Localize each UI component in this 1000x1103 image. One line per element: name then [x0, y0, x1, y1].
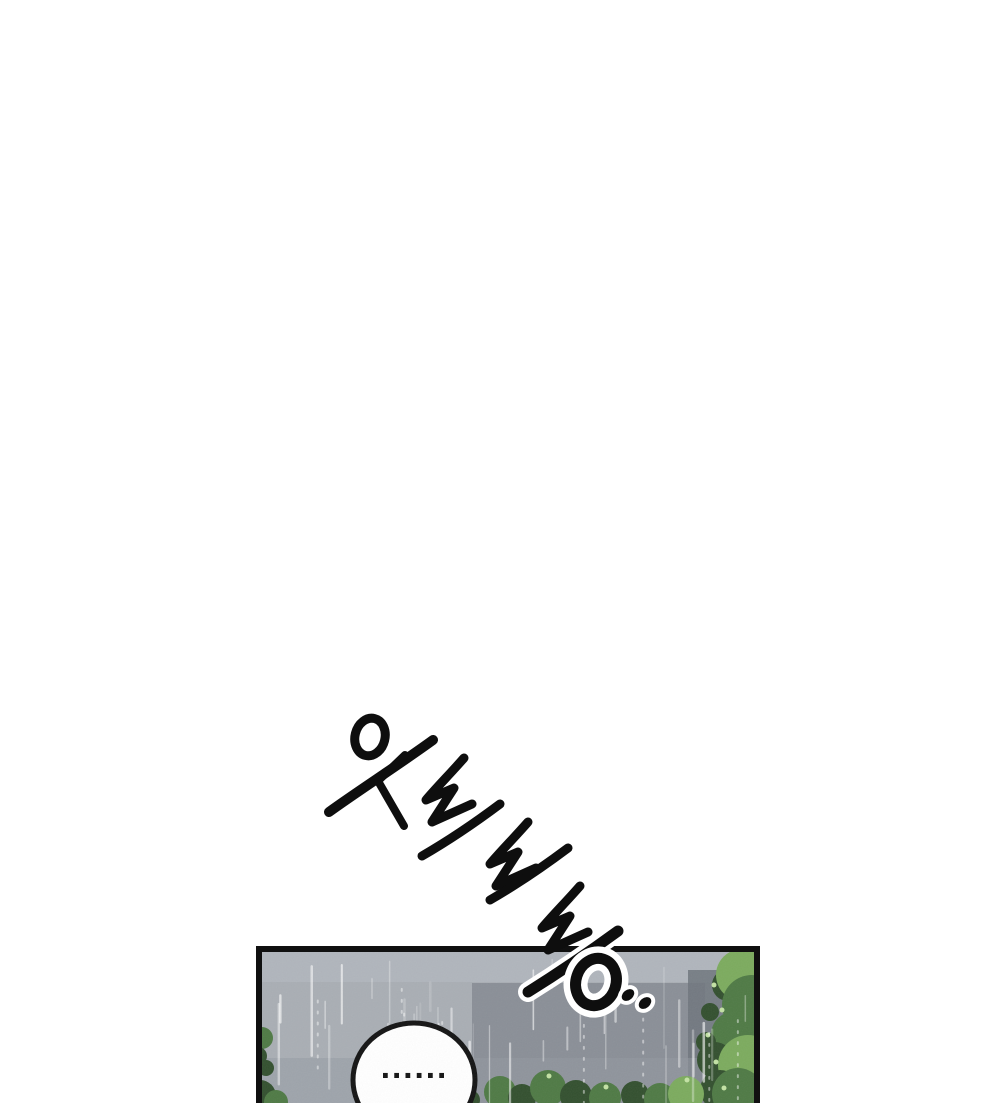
page-art: ...... 쏴아아아..: [0, 0, 1000, 1103]
sfx-stroke-ring: [351, 715, 389, 759]
panel-scene: ......: [244, 949, 782, 1103]
sfx-zigzag: [426, 758, 472, 822]
webtoon-page: ...... 쏴아아아..: [0, 0, 1000, 1103]
rain-panel: ......: [244, 949, 782, 1103]
sfx-zigzag-units: [422, 758, 588, 950]
sfx-zigzag: [542, 886, 588, 950]
panel-grain-texture: [262, 952, 754, 1103]
